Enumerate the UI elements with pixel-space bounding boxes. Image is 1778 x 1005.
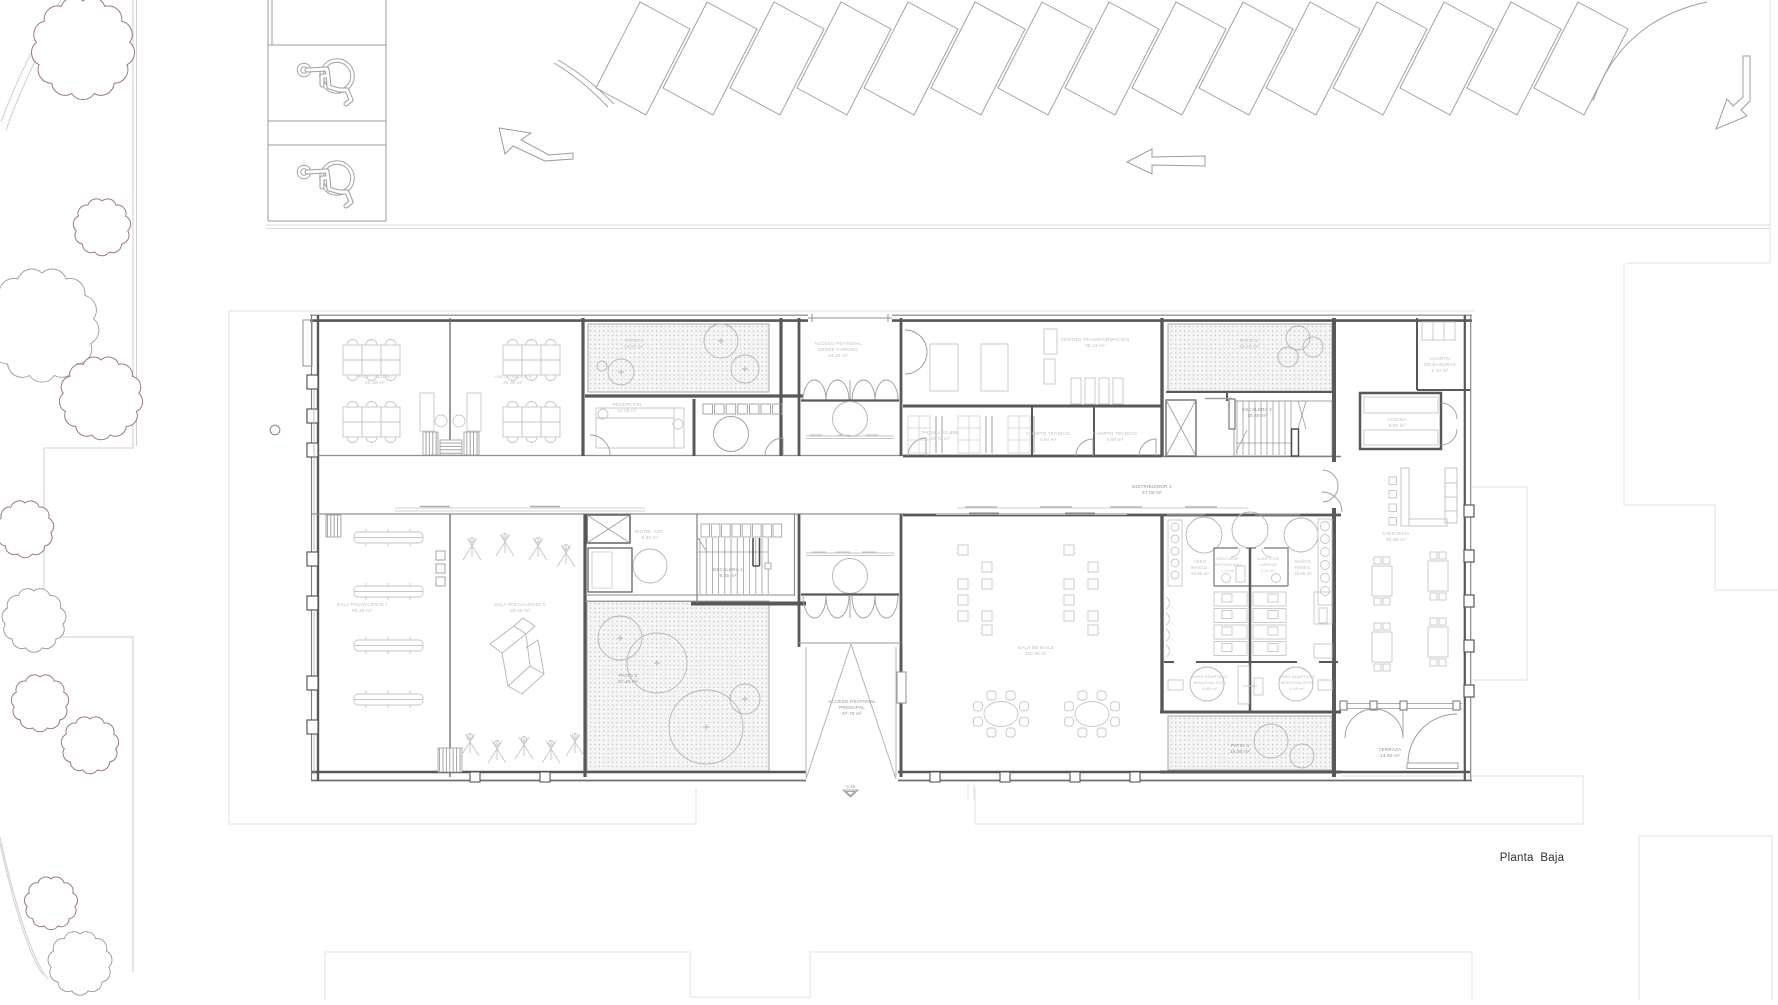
svg-text:CAFETERIA: CAFETERIA [1382,531,1410,536]
svg-text:PATIO 1: PATIO 1 [625,338,644,343]
svg-text:SALA DE BAILE: SALA DE BAILE [1018,645,1054,650]
svg-text:38.13 m²: 38.13 m² [1085,343,1105,348]
svg-text:CUARTO DE: CUARTO DE [1257,557,1280,561]
svg-text:13.60 m²: 13.60 m² [1380,753,1400,758]
svg-text:AULA-TALLER I: AULA-TALLER I [357,374,393,379]
svg-text:15.20 m²: 15.20 m² [1239,344,1259,349]
svg-text:16.80 m²: 16.80 m² [1230,749,1250,754]
svg-text:ACCESO PEATONAL: ACCESO PEATONAL [814,341,862,346]
svg-text:ASEO ADAPTADO: ASEO ADAPTADO [1279,674,1315,679]
svg-text:10.20 m²: 10.20 m² [617,408,637,413]
svg-text:16.85 m²: 16.85 m² [1191,571,1210,576]
svg-text:LIMPIEZA: LIMPIEZA [1259,563,1277,567]
svg-text:-0.15: -0.15 [845,784,856,789]
svg-text:4.60 m²: 4.60 m² [1040,437,1057,442]
svg-text:TAQUILLAS &BE: TAQUILLAS &BE [921,430,959,435]
svg-text:47.00 m²: 47.00 m² [1142,490,1162,495]
svg-text:SALA POLIVALENTE II: SALA POLIVALENTE II [494,602,545,607]
svg-text:4.60 m²: 4.60 m² [1107,437,1124,442]
svg-text:6.80 m²: 6.80 m² [1389,423,1406,428]
svg-text:DISTRIBUIDOR 2: DISTRIBUIDOR 2 [1132,484,1172,489]
svg-text:DISTRI. ASC.: DISTRI. ASC. [635,529,665,534]
svg-text:6.45 m²: 6.45 m² [720,573,737,578]
svg-text:BAÑOS: BAÑOS [1295,559,1311,564]
svg-text:2.10 m²: 2.10 m² [1261,569,1275,573]
svg-text:FEMEN.: FEMEN. [1294,565,1311,570]
svg-text:AULA-TALLER II: AULA-TALLER II [494,374,531,379]
svg-text:10.60 m²: 10.60 m² [1247,413,1267,418]
svg-text:ASEO ADAPTADO: ASEO ADAPTADO [1192,674,1228,679]
svg-text:59.40 m²: 59.40 m² [510,608,530,613]
svg-text:110.90 m²: 110.90 m² [1025,651,1047,656]
svg-text:CUARTO TECNICO: CUARTO TECNICO [1026,431,1070,436]
svg-text:5.10 m²: 5.10 m² [1432,368,1449,373]
svg-text:CENTRO TRANSFORMACION: CENTRO TRANSFORMACION [1061,337,1129,342]
svg-text:20.30 m²: 20.30 m² [503,380,523,385]
svg-text:ASEO ADAP.: ASEO ADAP. [1216,557,1239,561]
svg-text:6.85 m²: 6.85 m² [1290,686,1305,691]
svg-text:Planta Baja: Planta Baja [1500,852,1565,864]
svg-text:PATIO 4: PATIO 4 [1231,743,1250,748]
svg-text:MINUSVALIDOS: MINUSVALIDOS [1281,680,1313,685]
svg-text:PATIO 2: PATIO 2 [1240,338,1259,343]
svg-text:COCINA: COCINA [1387,417,1407,422]
svg-text:10.70 m²: 10.70 m² [930,436,950,441]
svg-text:CUARTO TECNICO: CUARTO TECNICO [1093,431,1137,436]
svg-text:PRINCIPAL: PRINCIPAL [839,705,865,710]
svg-text:16.85 m²: 16.85 m² [1294,571,1313,576]
svg-text:ACCESO PEATONAL: ACCESO PEATONAL [828,699,876,704]
svg-text:57.40 m²: 57.40 m² [618,679,638,684]
svg-text:ASEO: ASEO [1194,559,1207,564]
svg-text:PATIO 3: PATIO 3 [619,673,638,678]
svg-text:DESDE PARKING: DESDE PARKING [818,347,858,352]
svg-text:6.85 m²: 6.85 m² [1203,686,1218,691]
svg-text:66.80 m²: 66.80 m² [1386,537,1406,542]
svg-text:24.25 m²: 24.25 m² [828,353,848,358]
svg-text:SALA POLIVALENTE I: SALA POLIVALENTE I [337,602,387,607]
svg-text:2.10 m²: 2.10 m² [1221,569,1235,573]
svg-text:DE BASURAS: DE BASURAS [1424,362,1456,367]
svg-text:RECEPCION: RECEPCION [612,402,641,407]
svg-text:9.60 m²: 9.60 m² [642,535,659,540]
svg-text:CUARTO: CUARTO [1430,356,1451,361]
svg-text:MINUSVALIDOS: MINUSVALIDOS [1194,680,1226,685]
svg-text:MASCU.: MASCU. [1191,565,1209,570]
svg-text:ESCALERA 1: ESCALERA 1 [713,567,743,572]
svg-text:20.30 m²: 20.30 m² [365,380,385,385]
svg-text:47.70 m²: 47.70 m² [842,711,862,716]
svg-text:73.97 m²: 73.97 m² [624,344,644,349]
svg-text:MOTORIZADO: MOTORIZADO [1215,563,1241,567]
svg-text:TERRAZA: TERRAZA [1379,747,1403,752]
svg-text:59.40 m²: 59.40 m² [352,608,372,613]
svg-text:ESCALERA 2: ESCALERA 2 [1242,407,1272,412]
